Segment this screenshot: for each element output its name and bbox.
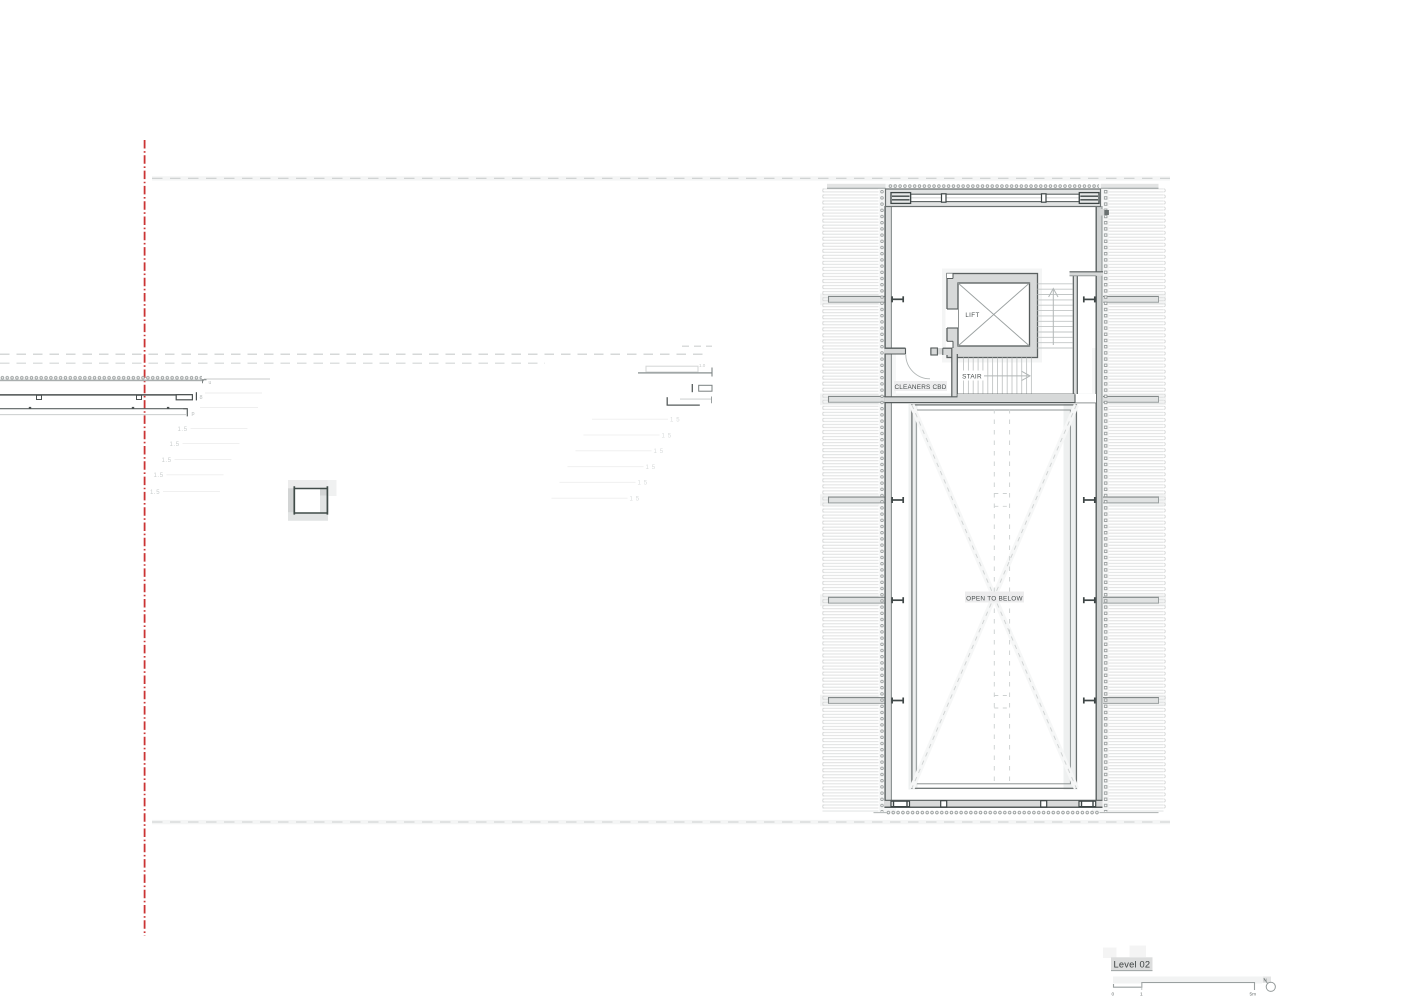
svg-text:1 5: 1 5 (638, 481, 648, 487)
svg-text:1.5: 1.5 (150, 490, 160, 496)
svg-text:1.5: 1.5 (178, 427, 188, 433)
svg-text:p: p (192, 411, 195, 417)
svg-text:N: N (1264, 978, 1267, 983)
svg-text:1.0: 1.0 (699, 363, 706, 368)
svg-text:u: u (209, 380, 212, 386)
svg-text:1 5: 1 5 (662, 433, 672, 439)
svg-text:8: 8 (200, 395, 203, 401)
svg-text:1 5: 1 5 (630, 497, 640, 503)
svg-text:0: 0 (1112, 992, 1115, 998)
svg-text:1.5: 1.5 (162, 458, 172, 464)
svg-text:LIFT: LIFT (965, 312, 979, 319)
svg-text:1: 1 (1140, 992, 1143, 998)
svg-text:5m: 5m (1250, 992, 1257, 998)
svg-text:1 5: 1 5 (646, 465, 656, 471)
svg-text:1.5: 1.5 (154, 473, 164, 479)
svg-text:CLEANERS CBD: CLEANERS CBD (894, 384, 946, 391)
svg-text:STAIR: STAIR (962, 374, 982, 381)
svg-text:OPEN TO BELOW: OPEN TO BELOW (966, 595, 1023, 602)
svg-text:1 5: 1 5 (670, 418, 680, 424)
svg-text:1 5: 1 5 (654, 449, 664, 455)
svg-text:1.5: 1.5 (170, 442, 180, 448)
svg-text:Level 02: Level 02 (1114, 960, 1151, 970)
